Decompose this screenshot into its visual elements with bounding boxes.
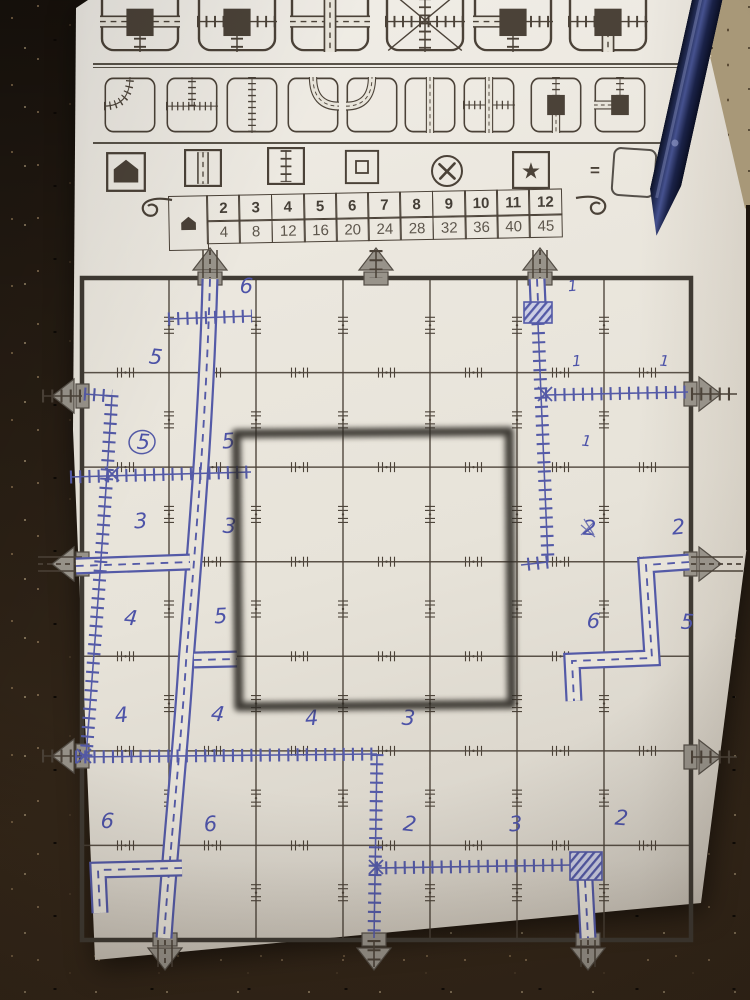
score-dice-sum: 8 bbox=[399, 191, 434, 219]
score-points: 24 bbox=[368, 217, 402, 242]
score-points: 36 bbox=[464, 215, 498, 240]
score-column-11: 1140 bbox=[496, 189, 531, 245]
score-dice-sum: 3 bbox=[238, 194, 273, 222]
score-points: 28 bbox=[400, 216, 434, 241]
score-column-12: 1245 bbox=[528, 188, 563, 244]
score-points: 45 bbox=[529, 214, 563, 239]
score-column-3: 38 bbox=[238, 194, 273, 250]
score-dice-sum: 5 bbox=[303, 193, 338, 221]
score-column-7: 724 bbox=[367, 192, 402, 248]
score-column-10: 1036 bbox=[464, 190, 499, 246]
score-column-9: 932 bbox=[432, 190, 467, 246]
station-square-symbol-icon bbox=[344, 149, 380, 190]
score-dice-sum: 2 bbox=[206, 195, 241, 223]
score-column-4: 412 bbox=[271, 193, 306, 249]
score-points: 4 bbox=[207, 220, 241, 245]
score-dice-sum: 7 bbox=[367, 192, 402, 220]
score-column-2: 24 bbox=[206, 195, 241, 251]
score-column-6: 620 bbox=[335, 192, 370, 248]
score-dice-sum: 6 bbox=[335, 192, 370, 220]
score-dice-sum: 10 bbox=[464, 190, 499, 218]
score-column-5: 516 bbox=[303, 193, 338, 249]
score-points: 12 bbox=[271, 219, 305, 244]
score-dice-sum: 11 bbox=[496, 189, 531, 217]
score-table: 2438412516620724828932103611401245 bbox=[168, 188, 563, 251]
score-points: 40 bbox=[496, 214, 530, 239]
score-dice-sum: 12 bbox=[528, 188, 563, 216]
score-table-scroll-right bbox=[574, 190, 610, 224]
score-points: 16 bbox=[303, 218, 337, 243]
score-points: 20 bbox=[335, 217, 369, 242]
road-symbol-icon bbox=[183, 148, 223, 193]
equals-sign: = bbox=[590, 161, 600, 181]
countertop-edge-sliver bbox=[746, 205, 750, 550]
photo-scene: ★= 2438412516620724828932103611401245 61… bbox=[0, 0, 750, 1000]
score-points: 32 bbox=[432, 215, 466, 240]
rail-symbol-icon bbox=[266, 146, 306, 191]
exit-house-symbol-icon bbox=[105, 151, 147, 198]
score-points: 8 bbox=[239, 219, 273, 244]
score-dice-sum: 9 bbox=[432, 190, 467, 218]
crossing-x-symbol-icon bbox=[427, 151, 467, 196]
score-dice-sum: 4 bbox=[271, 193, 306, 221]
center-square-frame-object bbox=[232, 427, 516, 711]
score-house-cell bbox=[168, 195, 209, 251]
legend-symbols-row: ★= bbox=[0, 0, 750, 200]
pen-logo-dot bbox=[671, 139, 679, 147]
svg-text:★: ★ bbox=[521, 158, 541, 184]
score-column-8: 828 bbox=[399, 191, 434, 247]
